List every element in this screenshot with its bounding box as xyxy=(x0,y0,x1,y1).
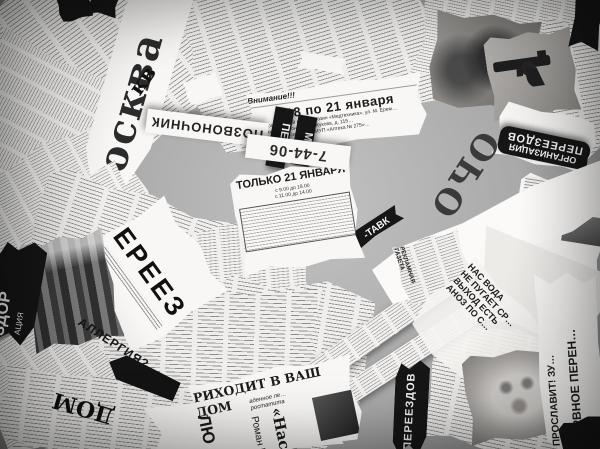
phone-number: 7-44-06 xyxy=(268,140,328,164)
gun-photo xyxy=(488,37,575,104)
newspaper-collage: осква кв Внимание!!! с 18 по 21 января •… xyxy=(0,0,600,449)
lyu-letters: ЛЮ xyxy=(193,413,223,449)
tolko-ad: ТОЛЬКО 21 ЯНВАРЯ с 9.00 до 18.00 с 11.00… xyxy=(229,157,365,277)
inset-photo xyxy=(312,390,360,441)
roman-byline: Роман Г xyxy=(249,415,268,449)
tavk-text: -ТАВК xyxy=(362,215,392,241)
gun-photo-scrap xyxy=(483,26,582,121)
nas-quote: «Нас xyxy=(267,406,294,449)
pereezdov-text: ПЕРЕЕЗДОВ xyxy=(402,364,418,449)
